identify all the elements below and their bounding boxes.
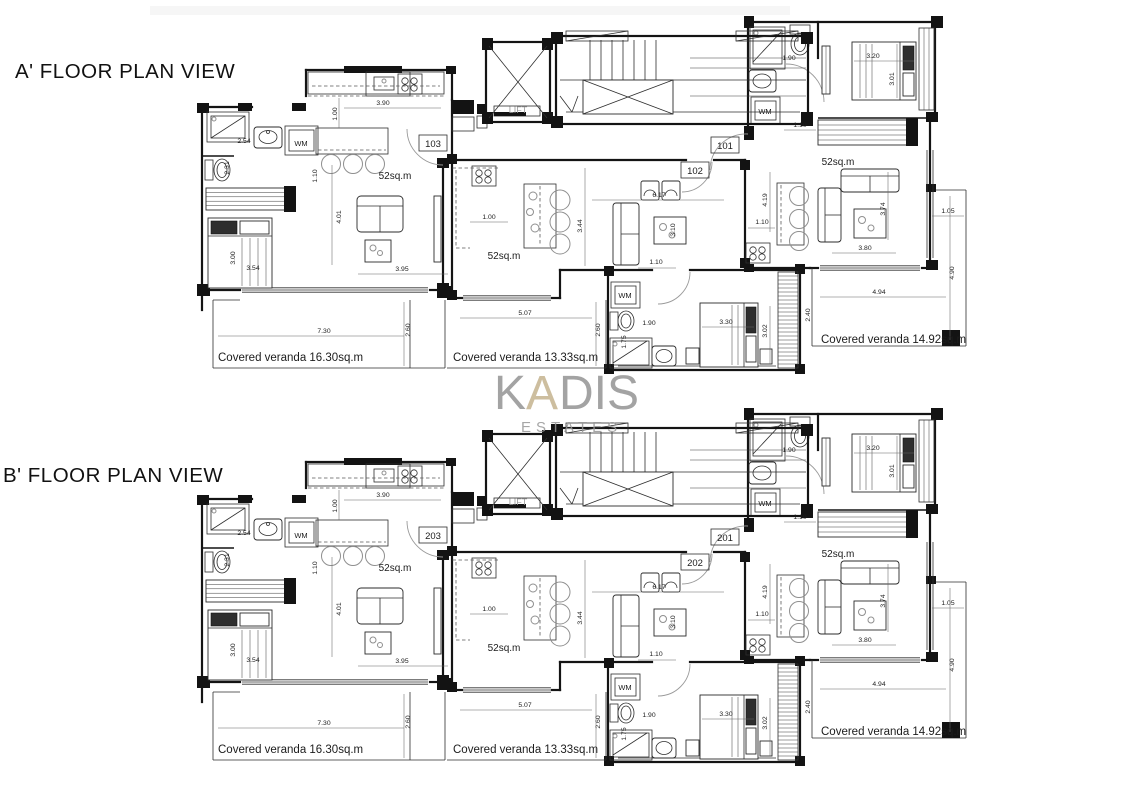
dimension-label: 5.07 <box>518 702 531 709</box>
dimension-label: 3.90 <box>376 492 389 499</box>
wm-label: WM <box>294 531 307 540</box>
dimension-label: 2.60 <box>405 323 412 336</box>
dimension-label: 3.30 <box>719 711 732 718</box>
plan-title: B' FLOOR PLAN VIEW <box>3 464 223 487</box>
watermark-text: K <box>494 367 526 420</box>
unit-number: 103 <box>425 139 441 150</box>
dimension-label: 3.74 <box>880 202 887 215</box>
dimension-label: 3.80 <box>858 637 871 644</box>
lift-label: LIFT <box>509 105 528 115</box>
unit-number: 203 <box>425 531 441 542</box>
dimension-label: 1.05 <box>941 600 954 607</box>
watermark-text: DIS <box>559 367 639 420</box>
area-label: 52sq.m <box>488 643 521 654</box>
dimension-label: 3.95 <box>395 658 408 665</box>
dimension-label: 6.17 <box>652 192 665 199</box>
veranda-label: Covered veranda 16.30sq.m <box>218 744 363 756</box>
dimension-label: 3.54 <box>246 265 259 272</box>
walls <box>197 16 966 374</box>
dimension-label: 3.44 <box>577 611 584 624</box>
dimension-label: 3.54 <box>246 657 259 664</box>
dimension-label: 1.00 <box>482 606 495 613</box>
dimension-label: 3.80 <box>858 245 871 252</box>
area-label: 52sq.m <box>822 549 855 560</box>
walls <box>197 408 966 766</box>
wm-label: WM <box>618 291 631 300</box>
dimension-label: 3.00 <box>230 251 237 264</box>
dimension-label: 4.19 <box>762 585 769 598</box>
dimension-label: 3.20 <box>866 445 879 452</box>
area-label: 52sq.m <box>822 157 855 168</box>
dimension-label: 3.90 <box>376 100 389 107</box>
dimension-label: 1.10 <box>649 651 662 658</box>
dimension-label: 4.01 <box>336 210 343 223</box>
unit-number: 201 <box>717 533 733 544</box>
dimension-label: 1.90 <box>782 447 795 454</box>
wm-label: WM <box>618 683 631 692</box>
area-label: 52sq.m <box>379 563 412 574</box>
dimension-label: 7.30 <box>317 328 330 335</box>
watermark: KADISESTATES <box>494 367 639 436</box>
dimension-label: 4.94 <box>872 289 885 296</box>
unit-number: 102 <box>687 166 703 177</box>
dimension-label: 3.10 <box>670 223 677 236</box>
dimension-label: 3.02 <box>762 716 769 729</box>
lift-label: LIFT <box>509 497 528 507</box>
dimension-label: 4.94 <box>872 681 885 688</box>
dimension-label: 1.90 <box>642 712 655 719</box>
dimension-label: 3.01 <box>889 464 896 477</box>
dimension-label: 1.90 <box>782 55 795 62</box>
dimension-label: 2.31 <box>224 161 231 174</box>
dimension-label: 2.60 <box>405 715 412 728</box>
wm-label: WM <box>758 499 771 508</box>
furniture: WM203WM202201WM <box>205 417 934 760</box>
dimension-label: 1.75 <box>621 335 628 348</box>
dimension-label: 3.95 <box>395 266 408 273</box>
wm-label: WM <box>294 139 307 148</box>
dimension-label: 4.01 <box>336 602 343 615</box>
floor-plan-b: WM203WM202201WMLIFT2.542.311.103.003.543… <box>197 408 966 766</box>
veranda-label: Covered veranda 16.30sq.m <box>218 352 363 364</box>
dimension-label: 2.54 <box>237 138 250 145</box>
area-label: 52sq.m <box>488 251 521 262</box>
dimension-label: 3.30 <box>719 319 732 326</box>
dimension-label: 1.10 <box>312 561 319 574</box>
dimension-label: 6.17 <box>652 584 665 591</box>
veranda-label: Covered veranda 13.33sq.m <box>453 744 598 756</box>
titles: A' FLOOR PLAN VIEWB' FLOOR PLAN VIEW <box>3 60 235 487</box>
dimension-label: 3.10 <box>670 615 677 628</box>
dimension-label: 2.40 <box>805 700 812 713</box>
dimension-label: 1.10 <box>312 169 319 182</box>
floor-plan-a: WM103WM102101WMLIFT2.542.311.103.003.543… <box>197 16 966 374</box>
veranda-label: Covered veranda 14.92sq.m <box>821 334 966 346</box>
dimension-label: 3.44 <box>577 219 584 232</box>
drawing-canvas: WM103WM102101WMLIFT2.542.311.103.003.543… <box>0 0 1133 806</box>
dimension-label: 3.01 <box>889 72 896 85</box>
veranda-label: Covered veranda 14.92sq.m <box>821 726 966 738</box>
dimension-label: 1.10 <box>793 122 806 129</box>
dimension-label: 3.20 <box>866 53 879 60</box>
dimension-label: 2.54 <box>237 530 250 537</box>
unit-number: 101 <box>717 141 733 152</box>
dimension-label: 1.00 <box>482 214 495 221</box>
dimension-label: 5.07 <box>518 310 531 317</box>
dimension-label: 1.10 <box>755 219 768 226</box>
watermark-subtext: ESTATES <box>521 419 622 436</box>
dimension-label: 1.90 <box>642 320 655 327</box>
dimension-label: 1.00 <box>332 499 339 512</box>
plan-title: A' FLOOR PLAN VIEW <box>15 60 235 83</box>
dimension-label: 3.00 <box>230 643 237 656</box>
dimension-label: 1.10 <box>793 514 806 521</box>
veranda-label: Covered veranda 13.33sq.m <box>453 352 598 364</box>
dimension-label: 2.40 <box>805 308 812 321</box>
dimension-label: 2.31 <box>224 553 231 566</box>
dimension-label: 1.75 <box>621 727 628 740</box>
wm-label: WM <box>758 107 771 116</box>
watermark-text: A <box>526 367 558 420</box>
dimension-label: 4.19 <box>762 193 769 206</box>
dimension-label: 1.05 <box>941 208 954 215</box>
dimension-label: 3.02 <box>762 324 769 337</box>
dimension-label: 1.10 <box>755 611 768 618</box>
area-label: 52sq.m <box>379 171 412 182</box>
dimension-label: 3.74 <box>880 594 887 607</box>
furniture: WM103WM102101WM <box>205 25 934 368</box>
dimension-label: 1.00 <box>332 107 339 120</box>
dimension-label: 1.10 <box>649 259 662 266</box>
dimension-label: 7.30 <box>317 720 330 727</box>
unit-number: 202 <box>687 558 703 569</box>
floor-plan-drawing: WM103WM102101WMLIFT2.542.311.103.003.543… <box>0 0 1133 806</box>
